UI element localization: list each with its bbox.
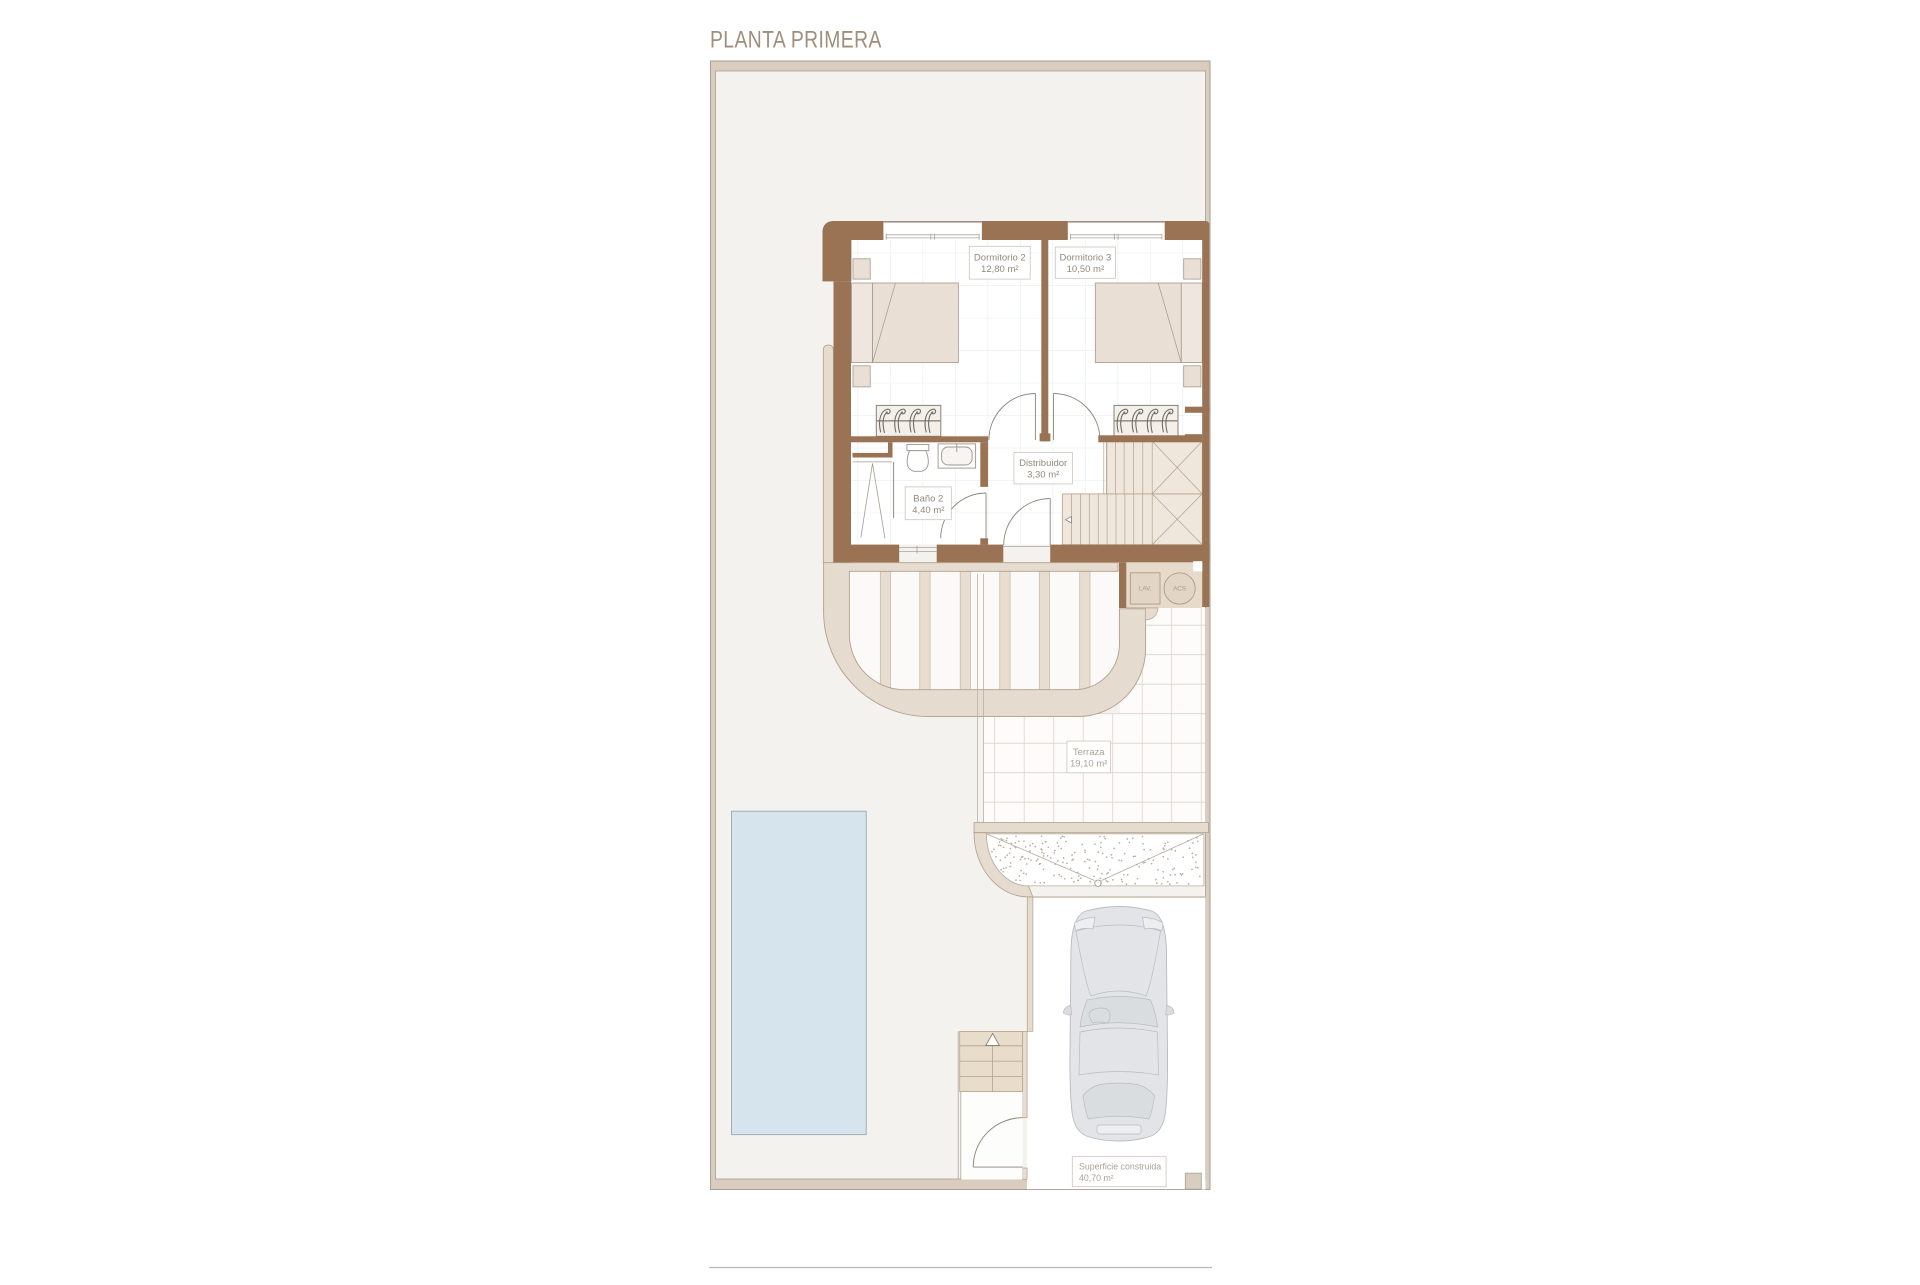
svg-text:LAV.: LAV. bbox=[1139, 586, 1152, 593]
svg-text:4,40 m²: 4,40 m² bbox=[912, 505, 944, 516]
svg-text:PLANTA PRIMERA: PLANTA PRIMERA bbox=[710, 25, 882, 53]
svg-text:19,10 m²: 19,10 m² bbox=[1070, 759, 1108, 770]
svg-text:Dormitorio 2: Dormitorio 2 bbox=[974, 253, 1026, 264]
svg-text:Distribuidor: Distribuidor bbox=[1019, 458, 1067, 469]
svg-text:ACS: ACS bbox=[1173, 586, 1186, 593]
svg-text:10,50 m²: 10,50 m² bbox=[1067, 264, 1105, 275]
svg-text:40,70 m²: 40,70 m² bbox=[1079, 1173, 1114, 1183]
svg-text:12,80 m²: 12,80 m² bbox=[981, 264, 1019, 275]
svg-text:Superficie construida: Superficie construida bbox=[1079, 1162, 1161, 1172]
svg-text:Dormitorio 3: Dormitorio 3 bbox=[1060, 253, 1112, 264]
svg-text:Terraza: Terraza bbox=[1073, 747, 1105, 758]
svg-text:3,30 m²: 3,30 m² bbox=[1027, 470, 1059, 481]
svg-text:Baño 2: Baño 2 bbox=[913, 493, 943, 504]
